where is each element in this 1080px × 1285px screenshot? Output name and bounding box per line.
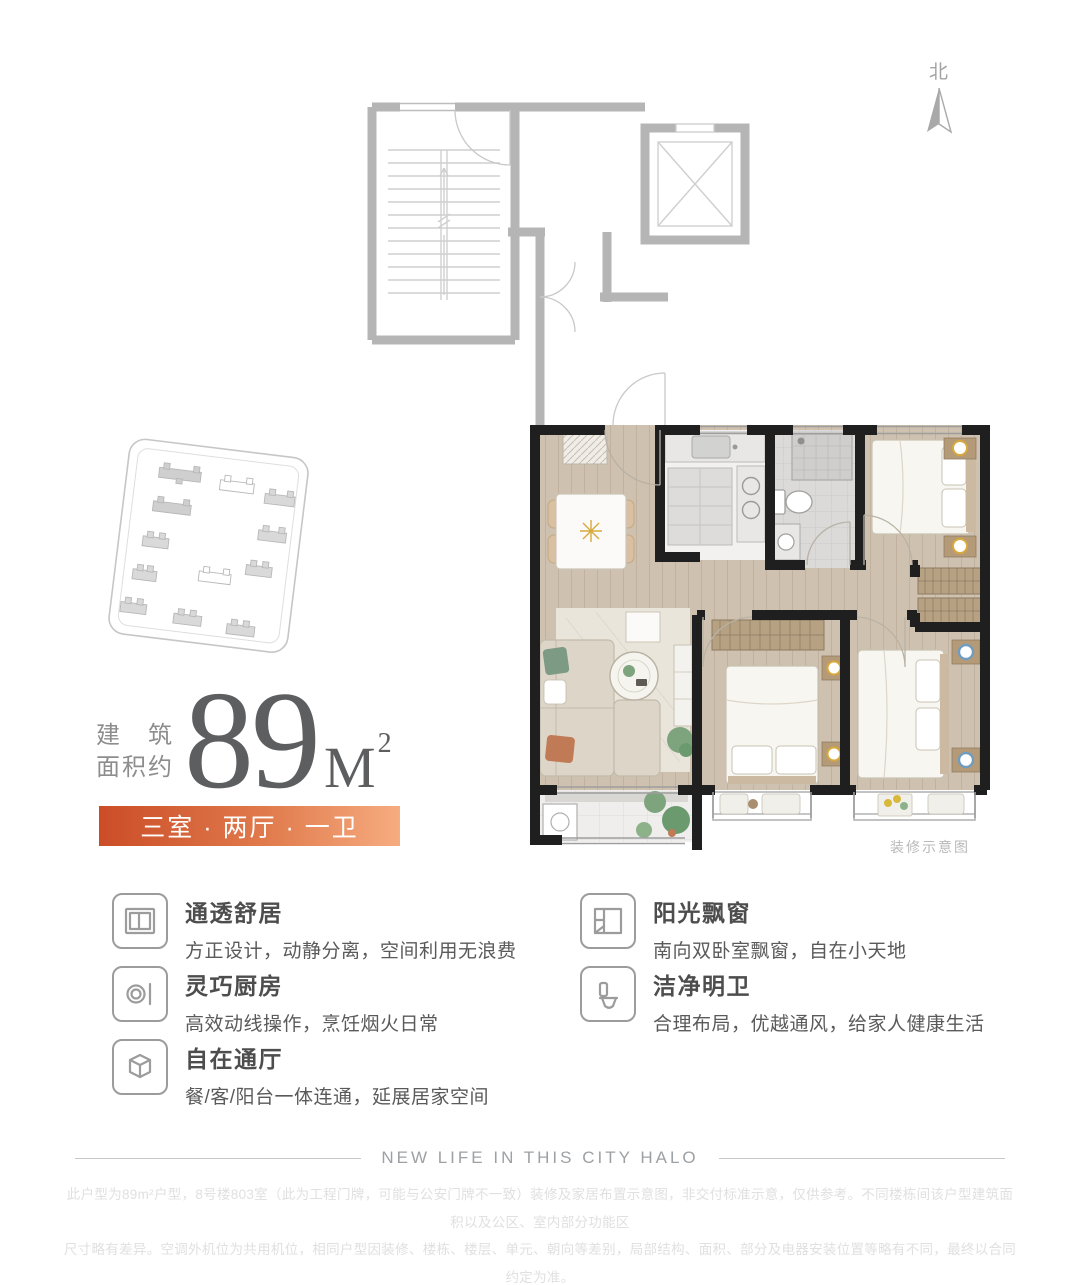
entry-cabinet — [563, 434, 607, 464]
area-label-line1: 建筑 — [96, 720, 174, 752]
area-value: 89 — [184, 688, 318, 794]
feature-item-bathroom: 洁净明卫 合理布局，优越通风，给家人健康生活 — [580, 966, 985, 1036]
feature-desc: 高效动线操作，烹饪烟火日常 — [185, 1009, 439, 1036]
feature-item-hall: 自在通厅 餐/客/阳台一体连通，延展居家空间 — [112, 1039, 489, 1109]
poster-page: 装修示意图 北 — [0, 0, 1080, 1285]
divider-line — [75, 1158, 361, 1159]
bay-window-icon — [580, 893, 636, 949]
dining-set — [548, 494, 634, 569]
area-unit: M 2 — [324, 742, 392, 794]
cube-icon — [112, 1039, 168, 1095]
site-plan — [107, 438, 310, 654]
elevator — [658, 124, 732, 226]
footer-slogan: NEW LIFE IN THIS CITY HALO — [75, 1148, 1005, 1168]
feature-title: 通透舒居 — [185, 893, 517, 928]
area-block: 建筑 面积约 89 M 2 — [96, 688, 392, 794]
stairs — [388, 150, 500, 300]
plan-caption: 装修示意图 — [890, 839, 970, 855]
area-label: 建筑 面积约 — [96, 720, 174, 785]
feature-desc: 方正设计，动静分离，空间利用无浪费 — [185, 936, 517, 963]
north-label: 北 — [929, 61, 948, 83]
disclaimer-line2: 尺寸略有差异。空调外机位为共用机位，相同户型因装修、楼栋、楼层、单元、朝向等差别… — [60, 1236, 1020, 1285]
feature-title: 灵巧厨房 — [185, 966, 439, 1001]
kitchen — [665, 432, 765, 545]
disclaimer-line1: 此户型为89m²户型，8号楼803室（此为工程门牌，可能与公安门牌不一致）装修及… — [60, 1181, 1020, 1236]
kitchen-icon — [112, 966, 168, 1022]
feature-item-comfort: 通透舒居 方正设计，动静分离，空间利用无浪费 — [112, 893, 517, 963]
feature-desc: 餐/客/阳台一体连通，延展居家空间 — [185, 1082, 489, 1109]
disclaimer: 此户型为89m²户型，8号楼803室（此为工程门牌，可能与公安门牌不一致）装修及… — [60, 1181, 1020, 1285]
north-arrow-icon — [927, 88, 939, 132]
window-icon — [112, 893, 168, 949]
feature-title: 洁净明卫 — [653, 966, 985, 1001]
north-compass: 北 — [927, 61, 951, 132]
feature-item-baywindow: 阳光飘窗 南向双卧室飘窗，自在小天地 — [580, 893, 907, 963]
feature-title: 阳光飘窗 — [653, 893, 907, 928]
slogan-text: NEW LIFE IN THIS CITY HALO — [381, 1148, 698, 1168]
toilet-icon — [580, 966, 636, 1022]
feature-item-kitchen: 灵巧厨房 高效动线操作，烹饪烟火日常 — [112, 966, 439, 1036]
layout-banner: 三室 · 两厅 · 一卫 — [99, 806, 400, 846]
living-room — [540, 608, 693, 776]
area-unit-letter: M — [324, 742, 376, 794]
divider-line — [719, 1158, 1005, 1159]
feature-desc: 南向双卧室飘窗，自在小天地 — [653, 936, 907, 963]
feature-title: 自在通厅 — [185, 1039, 489, 1074]
feature-desc: 合理布局，优越通风，给家人健康生活 — [653, 1009, 985, 1036]
area-label-line2: 面积约 — [96, 752, 174, 784]
area-unit-exponent: 2 — [378, 728, 392, 760]
